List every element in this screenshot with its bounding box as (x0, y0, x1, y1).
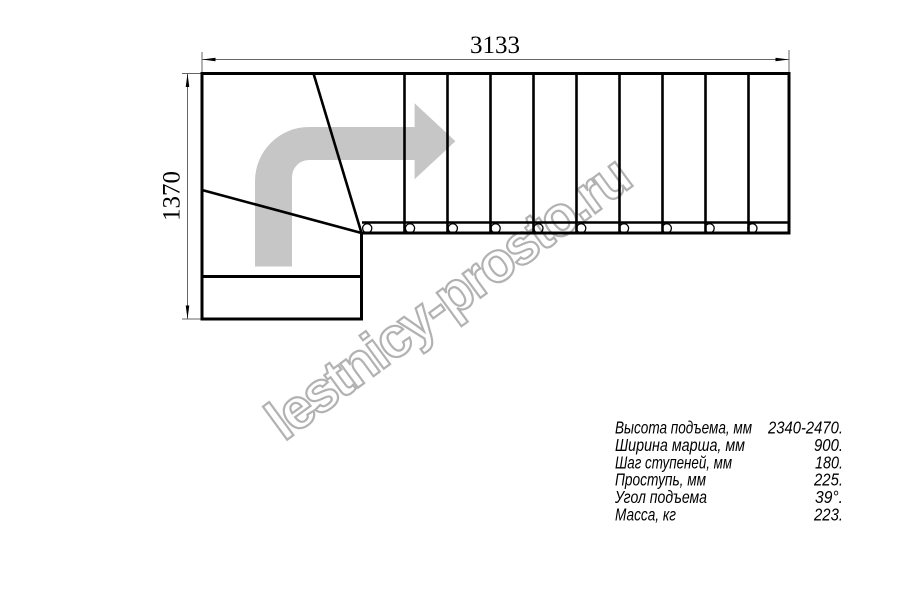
svg-text:3133: 3133 (470, 32, 520, 59)
svg-text:223.: 223. (813, 505, 843, 525)
svg-text:1370: 1370 (158, 171, 185, 221)
svg-text:Масса, кг: Масса, кг (615, 505, 676, 525)
